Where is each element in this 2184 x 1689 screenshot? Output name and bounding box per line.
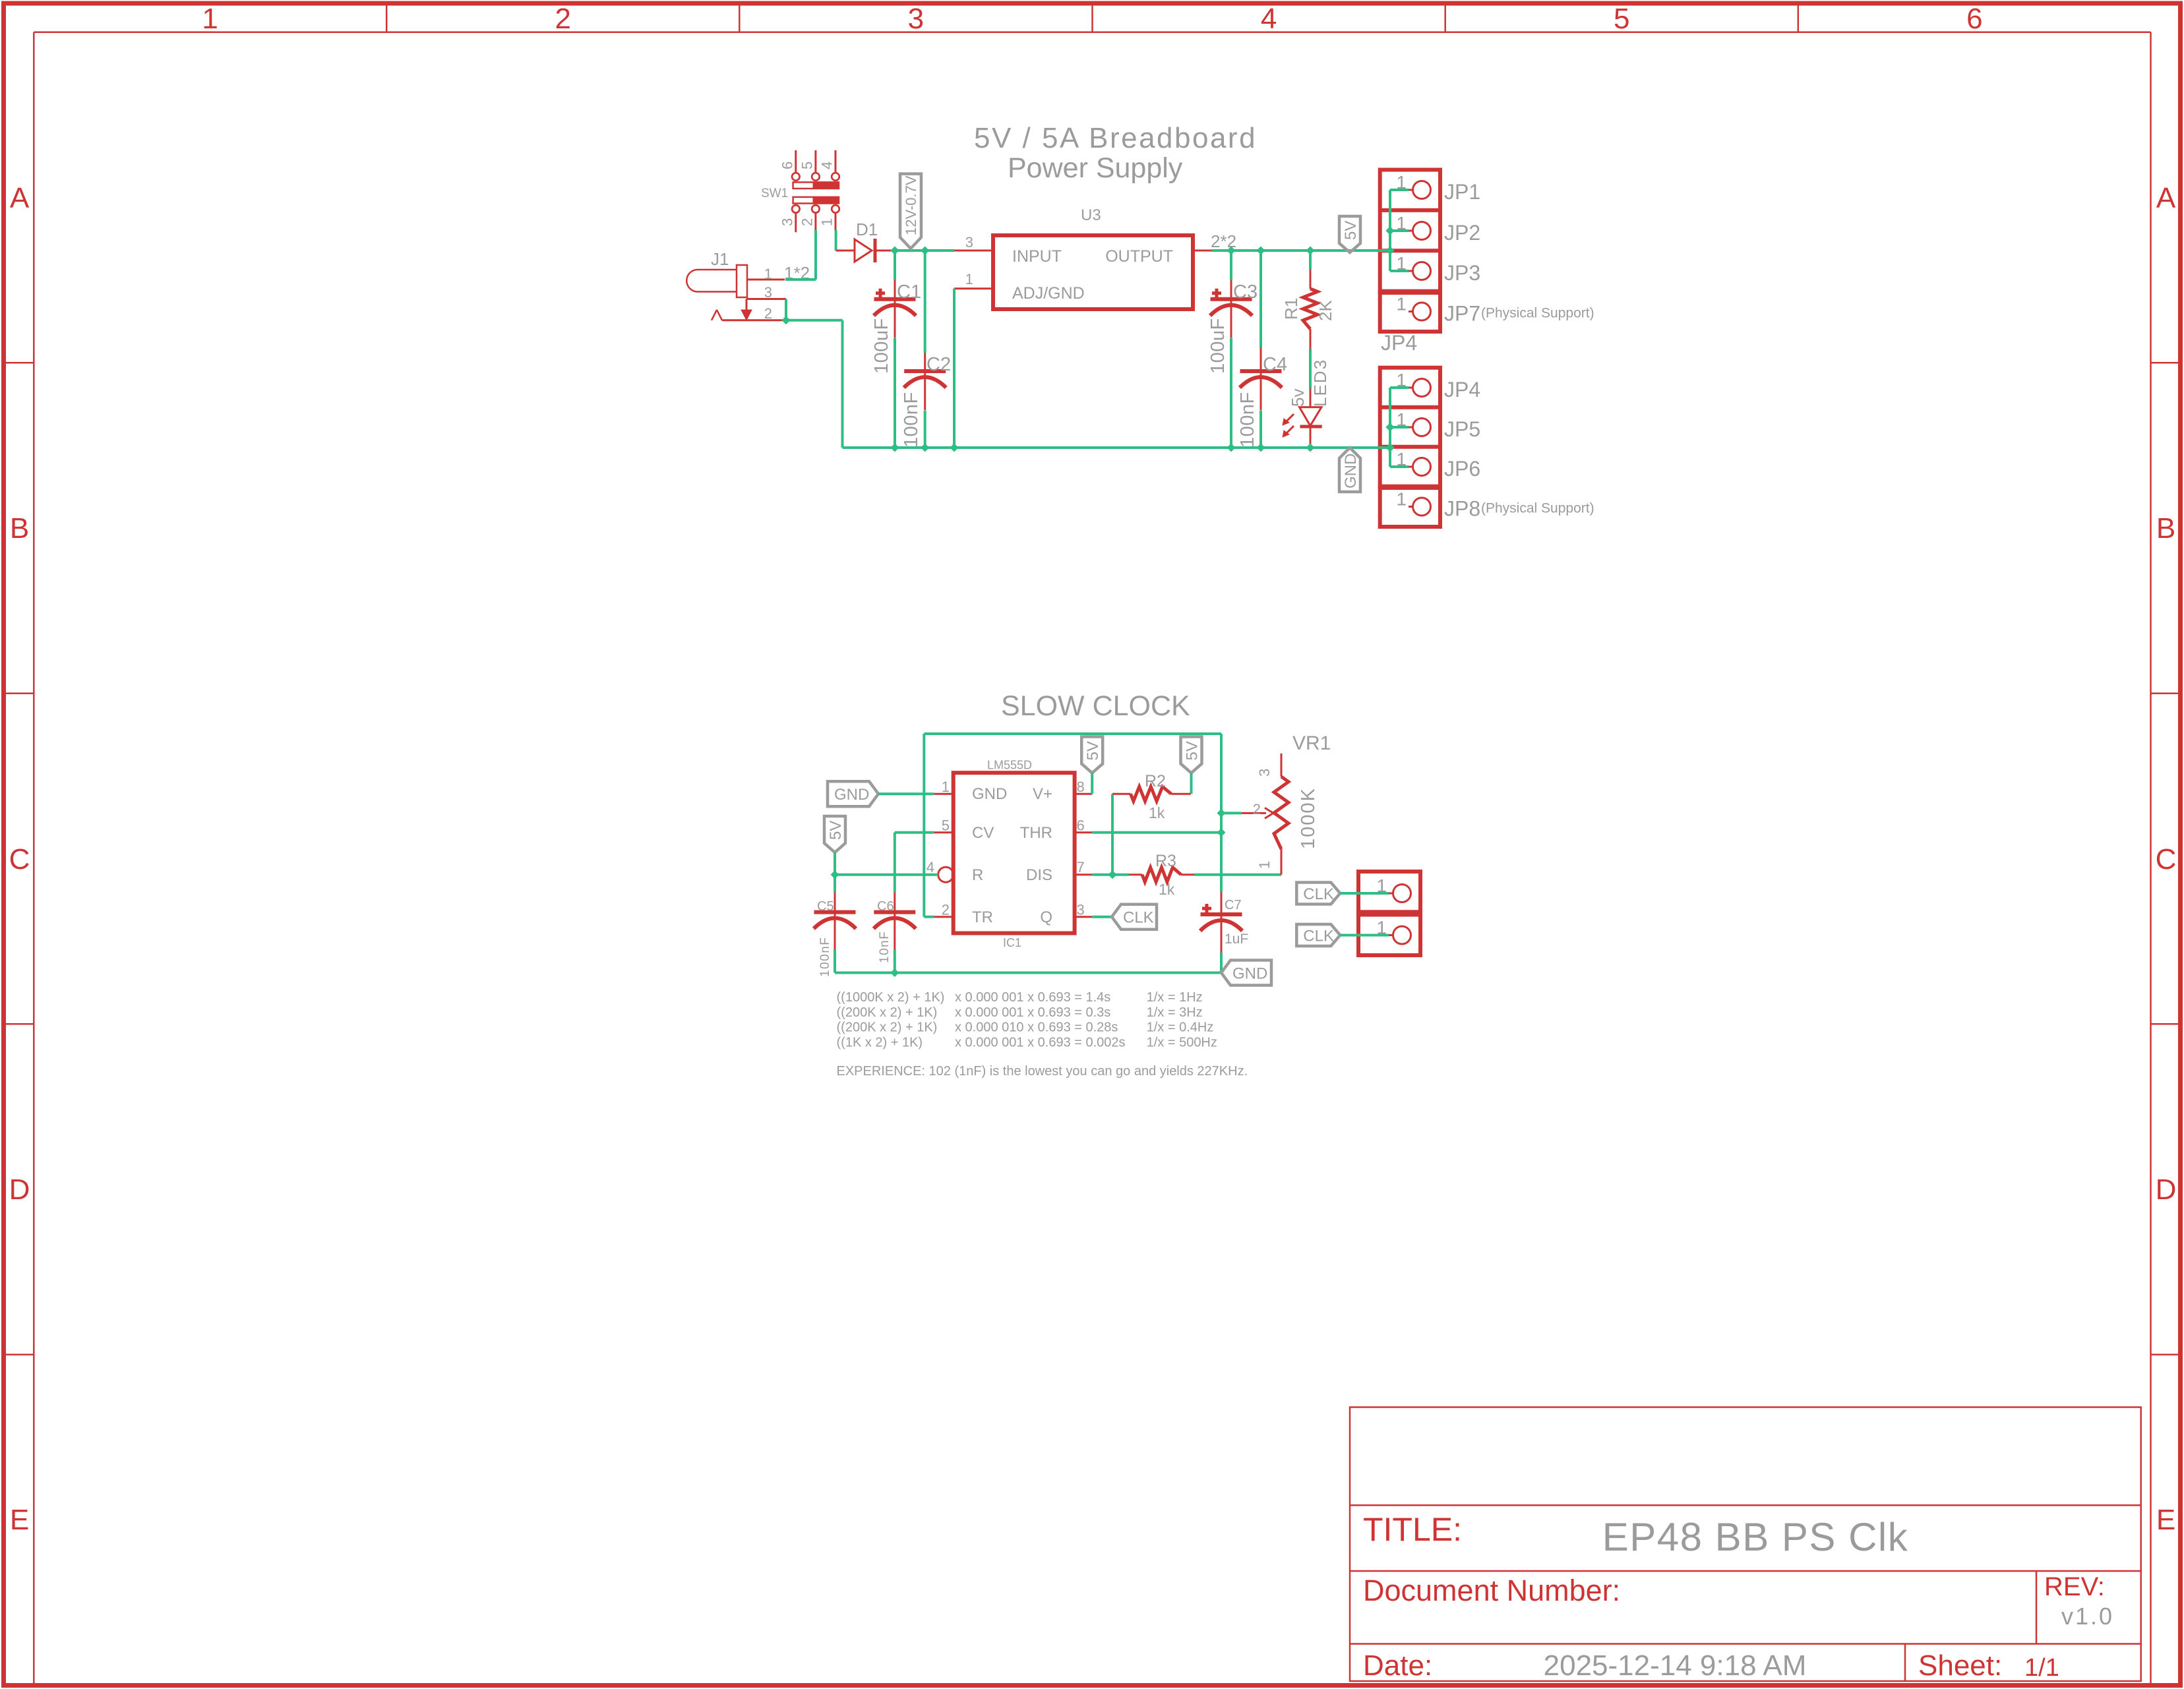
svg-text:B: B <box>10 512 29 545</box>
svg-text:JP7: JP7 <box>1444 302 1480 326</box>
svg-text:1/x = 3Hz: 1/x = 3Hz <box>1147 1005 1203 1020</box>
svg-text:8: 8 <box>1077 779 1085 795</box>
svg-text:JP1: JP1 <box>1444 180 1480 204</box>
svg-text:VR1: VR1 <box>1292 732 1331 754</box>
svg-text:1: 1 <box>1256 861 1273 869</box>
svg-text:IC1: IC1 <box>1003 936 1021 949</box>
svg-text:U3: U3 <box>1081 206 1101 224</box>
svg-text:A: A <box>10 182 30 214</box>
svg-text:12V-0.7V: 12V-0.7V <box>903 175 919 235</box>
svg-text:2: 2 <box>764 305 772 322</box>
svg-text:((200K x 2) + 1K): ((200K x 2) + 1K) <box>837 1005 938 1020</box>
svg-text:JP5: JP5 <box>1444 417 1480 441</box>
svg-text:JP4: JP4 <box>1444 378 1480 401</box>
svg-text:C2: C2 <box>926 354 951 375</box>
svg-text:CLK: CLK <box>1303 928 1334 945</box>
svg-text:C: C <box>9 843 30 875</box>
svg-text:(Physical Support): (Physical Support) <box>1481 501 1594 516</box>
svg-text:1: 1 <box>202 3 218 35</box>
svg-text:DIS: DIS <box>1026 866 1052 884</box>
svg-text:GND: GND <box>1232 965 1267 983</box>
svg-text:2K: 2K <box>1316 300 1335 321</box>
svg-text:R2: R2 <box>1145 772 1166 790</box>
svg-text:ADJ/GND: ADJ/GND <box>1012 284 1085 303</box>
svg-text:2: 2 <box>555 3 570 35</box>
svg-text:5V: 5V <box>1342 221 1360 240</box>
svg-text:E: E <box>2156 1504 2175 1536</box>
svg-text:OUTPUT: OUTPUT <box>1105 247 1173 266</box>
svg-text:V+: V+ <box>1033 785 1052 803</box>
svg-text:EP48 BB PS Clk: EP48 BB PS Clk <box>1602 1515 1909 1559</box>
svg-text:D: D <box>9 1173 30 1206</box>
svg-text:C3: C3 <box>1233 281 1258 303</box>
svg-text:JP4: JP4 <box>1381 331 1417 355</box>
svg-text:C6: C6 <box>877 899 894 914</box>
svg-text:C7: C7 <box>1225 898 1242 912</box>
svg-text:5: 5 <box>1614 3 1629 35</box>
svg-text:GND: GND <box>834 786 869 804</box>
svg-text:JP2: JP2 <box>1444 221 1480 245</box>
svg-text:LM555D: LM555D <box>987 759 1032 772</box>
svg-text:2: 2 <box>799 218 816 226</box>
svg-text:C1: C1 <box>897 281 921 303</box>
svg-text:Power Supply: Power Supply <box>1008 152 1183 184</box>
svg-text:4: 4 <box>926 859 934 875</box>
svg-text:5: 5 <box>799 162 816 169</box>
svg-text:D: D <box>2156 1173 2177 1206</box>
svg-text:x 0.000 001 x 0.693 = 0.3s: x 0.000 001 x 0.693 = 0.3s <box>955 1005 1110 1020</box>
svg-text:R: R <box>972 866 983 884</box>
svg-text:2025-12-14 9:18 AM: 2025-12-14 9:18 AM <box>1544 1649 1807 1682</box>
svg-text:TR: TR <box>972 908 993 926</box>
svg-text:100nF: 100nF <box>901 392 922 448</box>
svg-text:5V: 5V <box>1084 741 1102 760</box>
svg-text:5v: 5v <box>1288 389 1308 407</box>
svg-text:TITLE:: TITLE: <box>1363 1511 1462 1548</box>
svg-text:x 0.000 010 x 0.693 = 0.28s: x 0.000 010 x 0.693 = 0.28s <box>955 1021 1118 1035</box>
svg-text:((200K x 2) + 1K): ((200K x 2) + 1K) <box>837 1021 938 1035</box>
svg-text:REV:: REV: <box>2044 1572 2105 1601</box>
svg-text:3: 3 <box>1256 769 1273 777</box>
svg-text:1: 1 <box>1396 489 1407 510</box>
svg-text:3: 3 <box>779 218 796 226</box>
svg-text:Sheet:: Sheet: <box>1918 1649 2002 1682</box>
svg-text:D1: D1 <box>856 220 878 239</box>
svg-text:x 0.000 001 x 0.693 = 1.4s: x 0.000 001 x 0.693 = 1.4s <box>955 990 1110 1005</box>
svg-text:3: 3 <box>908 3 924 35</box>
svg-text:JP3: JP3 <box>1444 261 1480 285</box>
svg-text:((1000K x 2) + 1K): ((1000K x 2) + 1K) <box>837 990 945 1005</box>
svg-text:100uF: 100uF <box>1207 318 1228 374</box>
svg-text:SW1: SW1 <box>761 187 788 200</box>
svg-text:SLOW CLOCK: SLOW CLOCK <box>1001 690 1190 722</box>
svg-text:3: 3 <box>1077 902 1085 918</box>
svg-text:5V: 5V <box>827 821 845 840</box>
svg-text:R3: R3 <box>1155 852 1176 870</box>
svg-text:JP6: JP6 <box>1444 457 1480 481</box>
svg-text:5: 5 <box>942 817 950 834</box>
svg-text:1: 1 <box>965 271 973 287</box>
svg-text:C4: C4 <box>1263 354 1287 375</box>
svg-text:1: 1 <box>942 779 950 795</box>
svg-text:1: 1 <box>819 218 835 226</box>
svg-text:CLK: CLK <box>1123 909 1154 927</box>
svg-text:5V: 5V <box>1184 741 1201 760</box>
svg-text:1/x = 1Hz: 1/x = 1Hz <box>1147 990 1203 1005</box>
svg-text:6: 6 <box>1966 3 1982 35</box>
svg-text:1k: 1k <box>1149 804 1165 821</box>
svg-text:J1: J1 <box>711 249 729 269</box>
svg-text:A: A <box>2156 182 2176 214</box>
svg-text:2: 2 <box>942 902 950 918</box>
svg-text:1/1: 1/1 <box>2024 1654 2059 1682</box>
svg-text:1k: 1k <box>1159 881 1175 898</box>
svg-text:B: B <box>2156 512 2175 545</box>
svg-text:7: 7 <box>1077 859 1085 875</box>
svg-text:1/x = 500Hz: 1/x = 500Hz <box>1147 1035 1217 1050</box>
svg-text:3: 3 <box>965 234 973 251</box>
svg-text:Date:: Date: <box>1363 1649 1432 1682</box>
svg-text:EXPERIENCE: 102 (1nF) is the l: EXPERIENCE: 102 (1nF) is the lowest you … <box>837 1064 1248 1079</box>
svg-text:CLK: CLK <box>1303 885 1334 903</box>
svg-text:Document Number:: Document Number: <box>1363 1574 1620 1607</box>
svg-text:(Physical Support): (Physical Support) <box>1481 306 1594 321</box>
svg-text:E: E <box>10 1504 29 1536</box>
svg-text:6: 6 <box>1077 817 1085 834</box>
svg-text:100nF: 100nF <box>1237 392 1258 448</box>
svg-text:C5: C5 <box>817 899 834 914</box>
svg-text:GND: GND <box>1342 454 1360 489</box>
svg-text:C: C <box>2156 843 2177 875</box>
svg-text:GND: GND <box>972 785 1007 803</box>
svg-text:1: 1 <box>1396 294 1407 314</box>
svg-text:x 0.000 001 x 0.693 = 0.002s: x 0.000 001 x 0.693 = 0.002s <box>955 1035 1126 1050</box>
svg-text:3: 3 <box>764 284 772 301</box>
svg-text:((1K x 2) + 1K): ((1K x 2) + 1K) <box>837 1035 923 1050</box>
svg-text:1uF: 1uF <box>1225 932 1248 947</box>
svg-text:INPUT: INPUT <box>1012 247 1062 266</box>
svg-text:CV: CV <box>972 824 994 842</box>
svg-text:1: 1 <box>764 266 772 282</box>
svg-text:2: 2 <box>1253 801 1261 817</box>
svg-text:1000K: 1000K <box>1298 787 1319 849</box>
svg-text:4: 4 <box>819 162 835 169</box>
svg-text:JP8: JP8 <box>1444 497 1480 521</box>
svg-text:1/x = 0.4Hz: 1/x = 0.4Hz <box>1147 1021 1214 1035</box>
svg-text:v1.0: v1.0 <box>2061 1603 2114 1630</box>
svg-text:100nF: 100nF <box>818 937 832 977</box>
svg-text:6: 6 <box>779 162 796 169</box>
svg-text:4: 4 <box>1261 3 1277 35</box>
svg-text:THR: THR <box>1020 824 1052 842</box>
svg-text:10nF: 10nF <box>878 931 892 963</box>
svg-text:LED3: LED3 <box>1310 359 1330 407</box>
svg-text:R1: R1 <box>1281 298 1301 320</box>
svg-text:5V / 5A Breadboard: 5V / 5A Breadboard <box>974 122 1257 154</box>
svg-text:100uF: 100uF <box>871 318 892 374</box>
svg-text:Q: Q <box>1040 908 1052 926</box>
